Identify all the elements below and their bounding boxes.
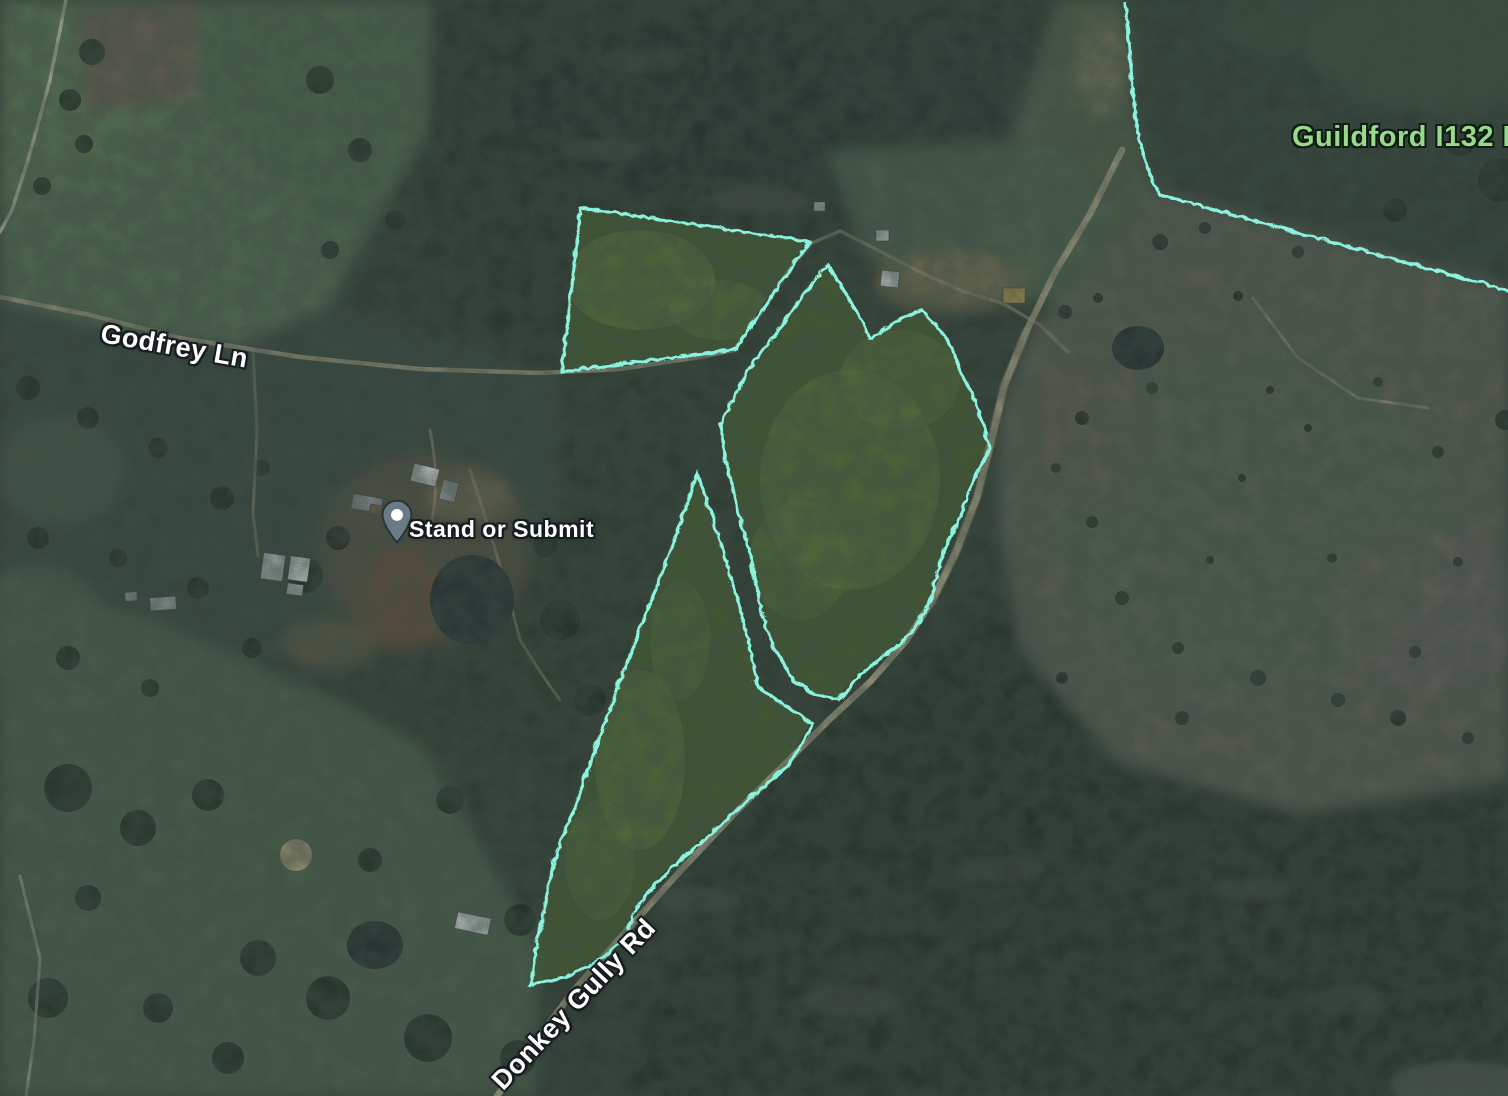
map-canvas[interactable]: Godfrey Ln Donkey Gully Rd Guildford I13… [0, 0, 1508, 1096]
photo-grain [0, 0, 1508, 1096]
map-pin-icon[interactable] [380, 499, 414, 545]
satellite-imagery [0, 0, 1508, 1096]
